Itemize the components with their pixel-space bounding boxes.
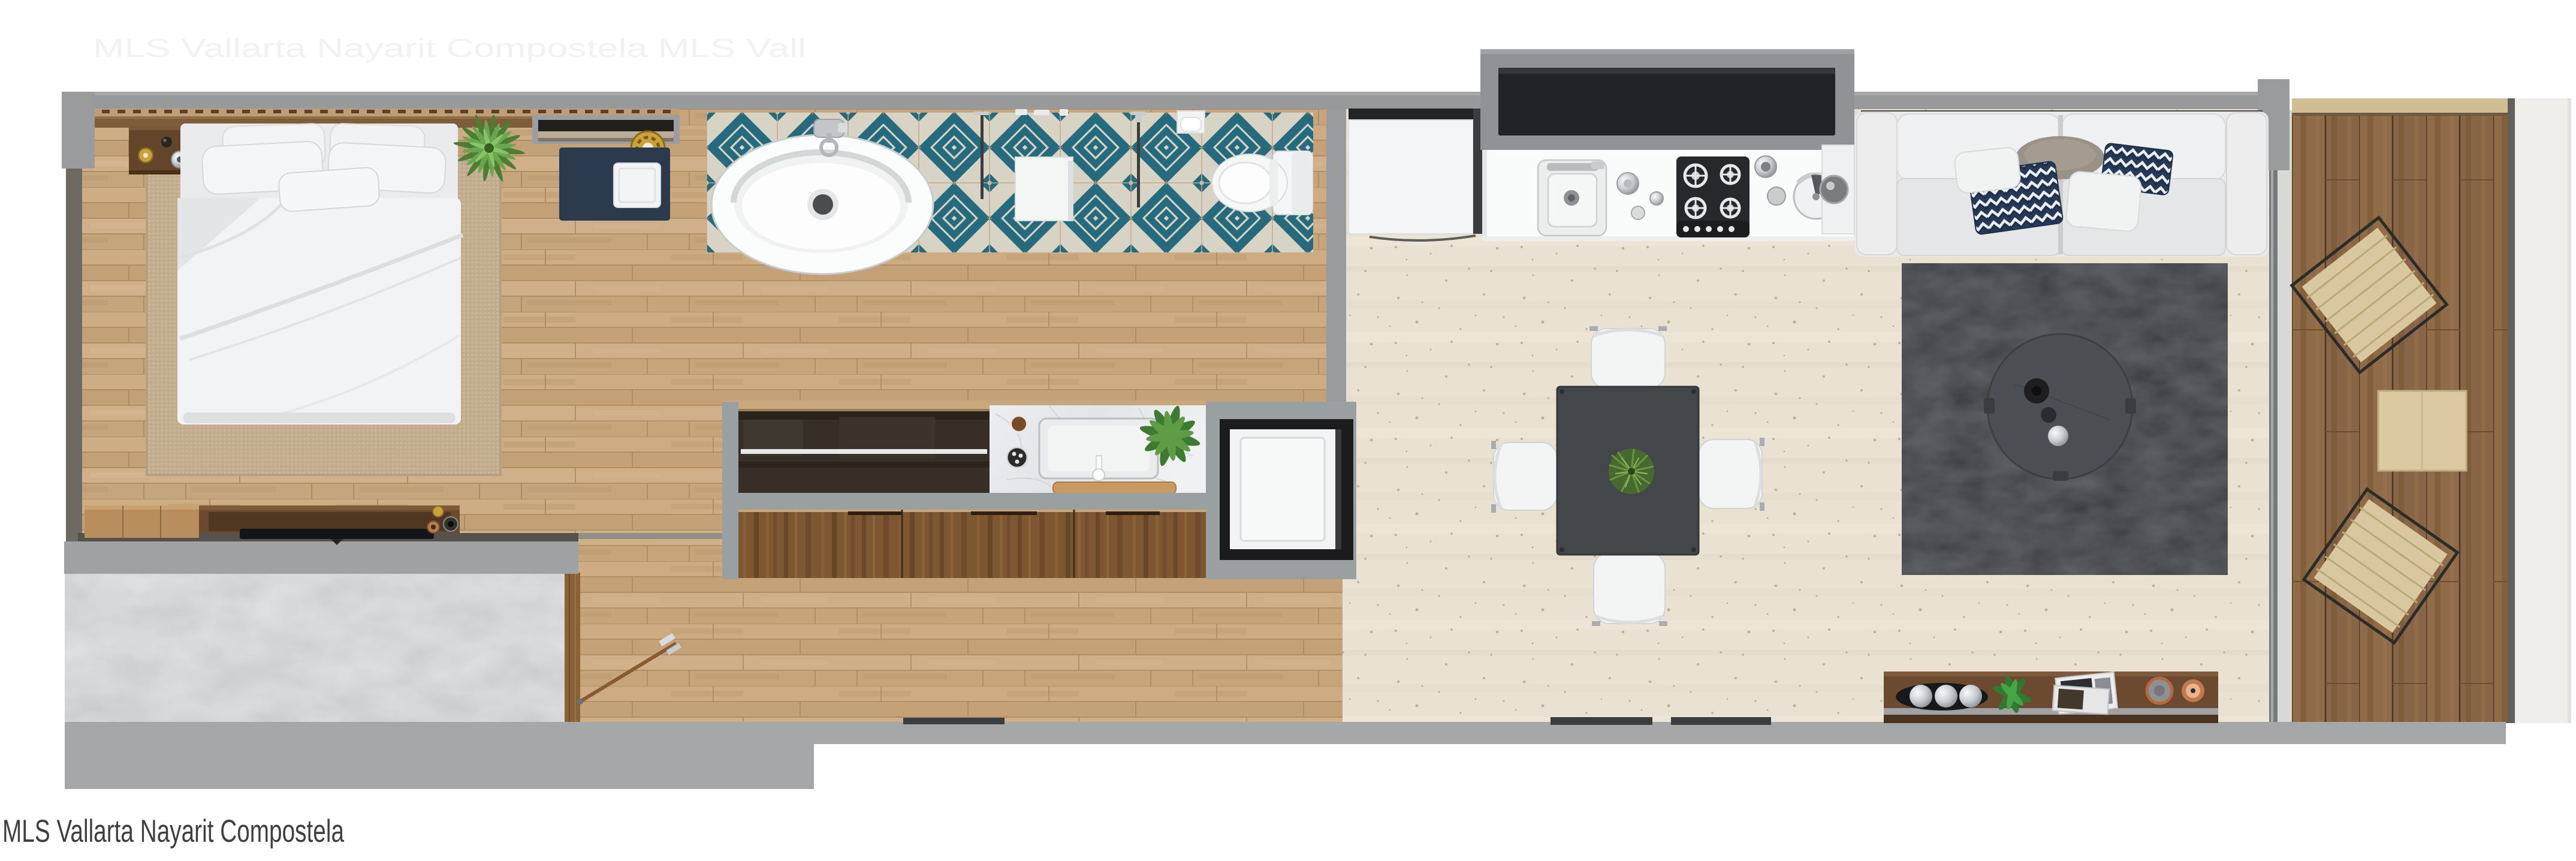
svg-text:MLS Vallarta Nayarit Compostel: MLS Vallarta Nayarit Compostela MLS Vall (93, 34, 806, 63)
svg-text:MLS Vallarta Nayarit Compostel: MLS Vallarta Nayarit Compostela (2, 814, 344, 849)
